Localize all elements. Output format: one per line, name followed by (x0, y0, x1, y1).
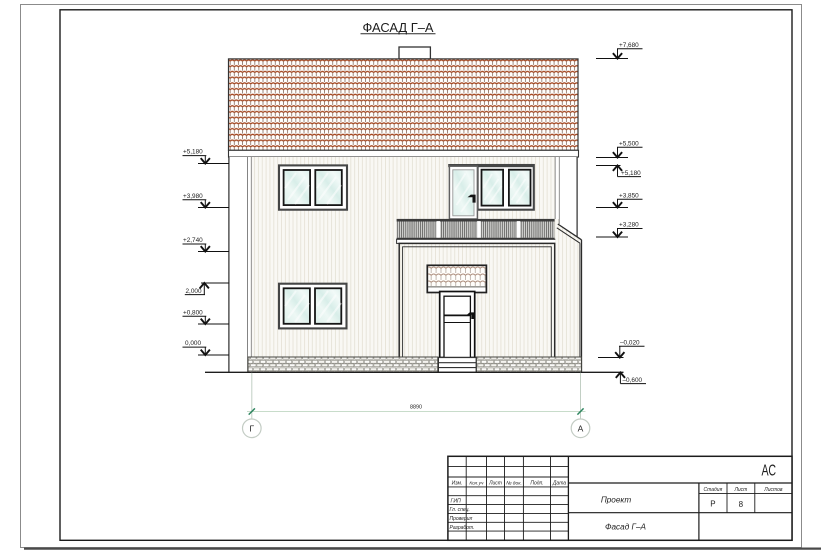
svg-text:–0,600: –0,600 (623, 377, 643, 384)
svg-text:Проект: Проект (601, 495, 632, 504)
svg-text:АС: АС (762, 462, 777, 479)
svg-text:+2,740: +2,740 (183, 237, 203, 244)
svg-text:Кол.уч: Кол.уч (469, 480, 484, 485)
svg-text:Р: Р (710, 500, 715, 509)
svg-text:+5,180: +5,180 (183, 149, 203, 156)
svg-text:Лист: Лист (733, 487, 747, 493)
svg-text:+5,180: +5,180 (621, 170, 641, 177)
svg-text:Дата: Дата (552, 480, 566, 486)
svg-text:ФАСАД Г–А: ФАСАД Г–А (363, 20, 434, 35)
svg-text:+3,280: +3,280 (619, 222, 639, 229)
svg-text:Разработ.: Разработ. (450, 525, 475, 531)
svg-text:Г: Г (249, 423, 254, 433)
svg-text:А: А (578, 423, 584, 433)
svg-text:0,000: 0,000 (185, 340, 201, 347)
svg-text:–0,020: –0,020 (620, 339, 640, 346)
svg-text:+7,680: +7,680 (619, 42, 639, 49)
svg-text:8: 8 (739, 500, 744, 509)
svg-text:+5,500: +5,500 (619, 140, 639, 147)
svg-text:ГИП: ГИП (451, 498, 462, 504)
svg-text:+3,850: +3,850 (619, 192, 639, 199)
svg-text:+0,800: +0,800 (183, 309, 203, 316)
svg-text:Проверил: Проверил (450, 516, 473, 522)
svg-text:8890: 8890 (410, 404, 422, 410)
svg-text:Листов: Листов (763, 487, 783, 493)
svg-text:Стадия: Стадия (704, 487, 723, 493)
svg-text:Лист: Лист (488, 480, 502, 486)
svg-text:№ док.: № док. (506, 480, 522, 486)
svg-text:Фасад Г–А: Фасад Г–А (605, 523, 647, 532)
svg-text:Изм.: Изм. (452, 480, 463, 486)
svg-text:+3,980: +3,980 (183, 193, 203, 200)
svg-text:Гл. спец.: Гл. спец. (450, 507, 470, 513)
svg-text:Подп.: Подп. (530, 480, 543, 486)
